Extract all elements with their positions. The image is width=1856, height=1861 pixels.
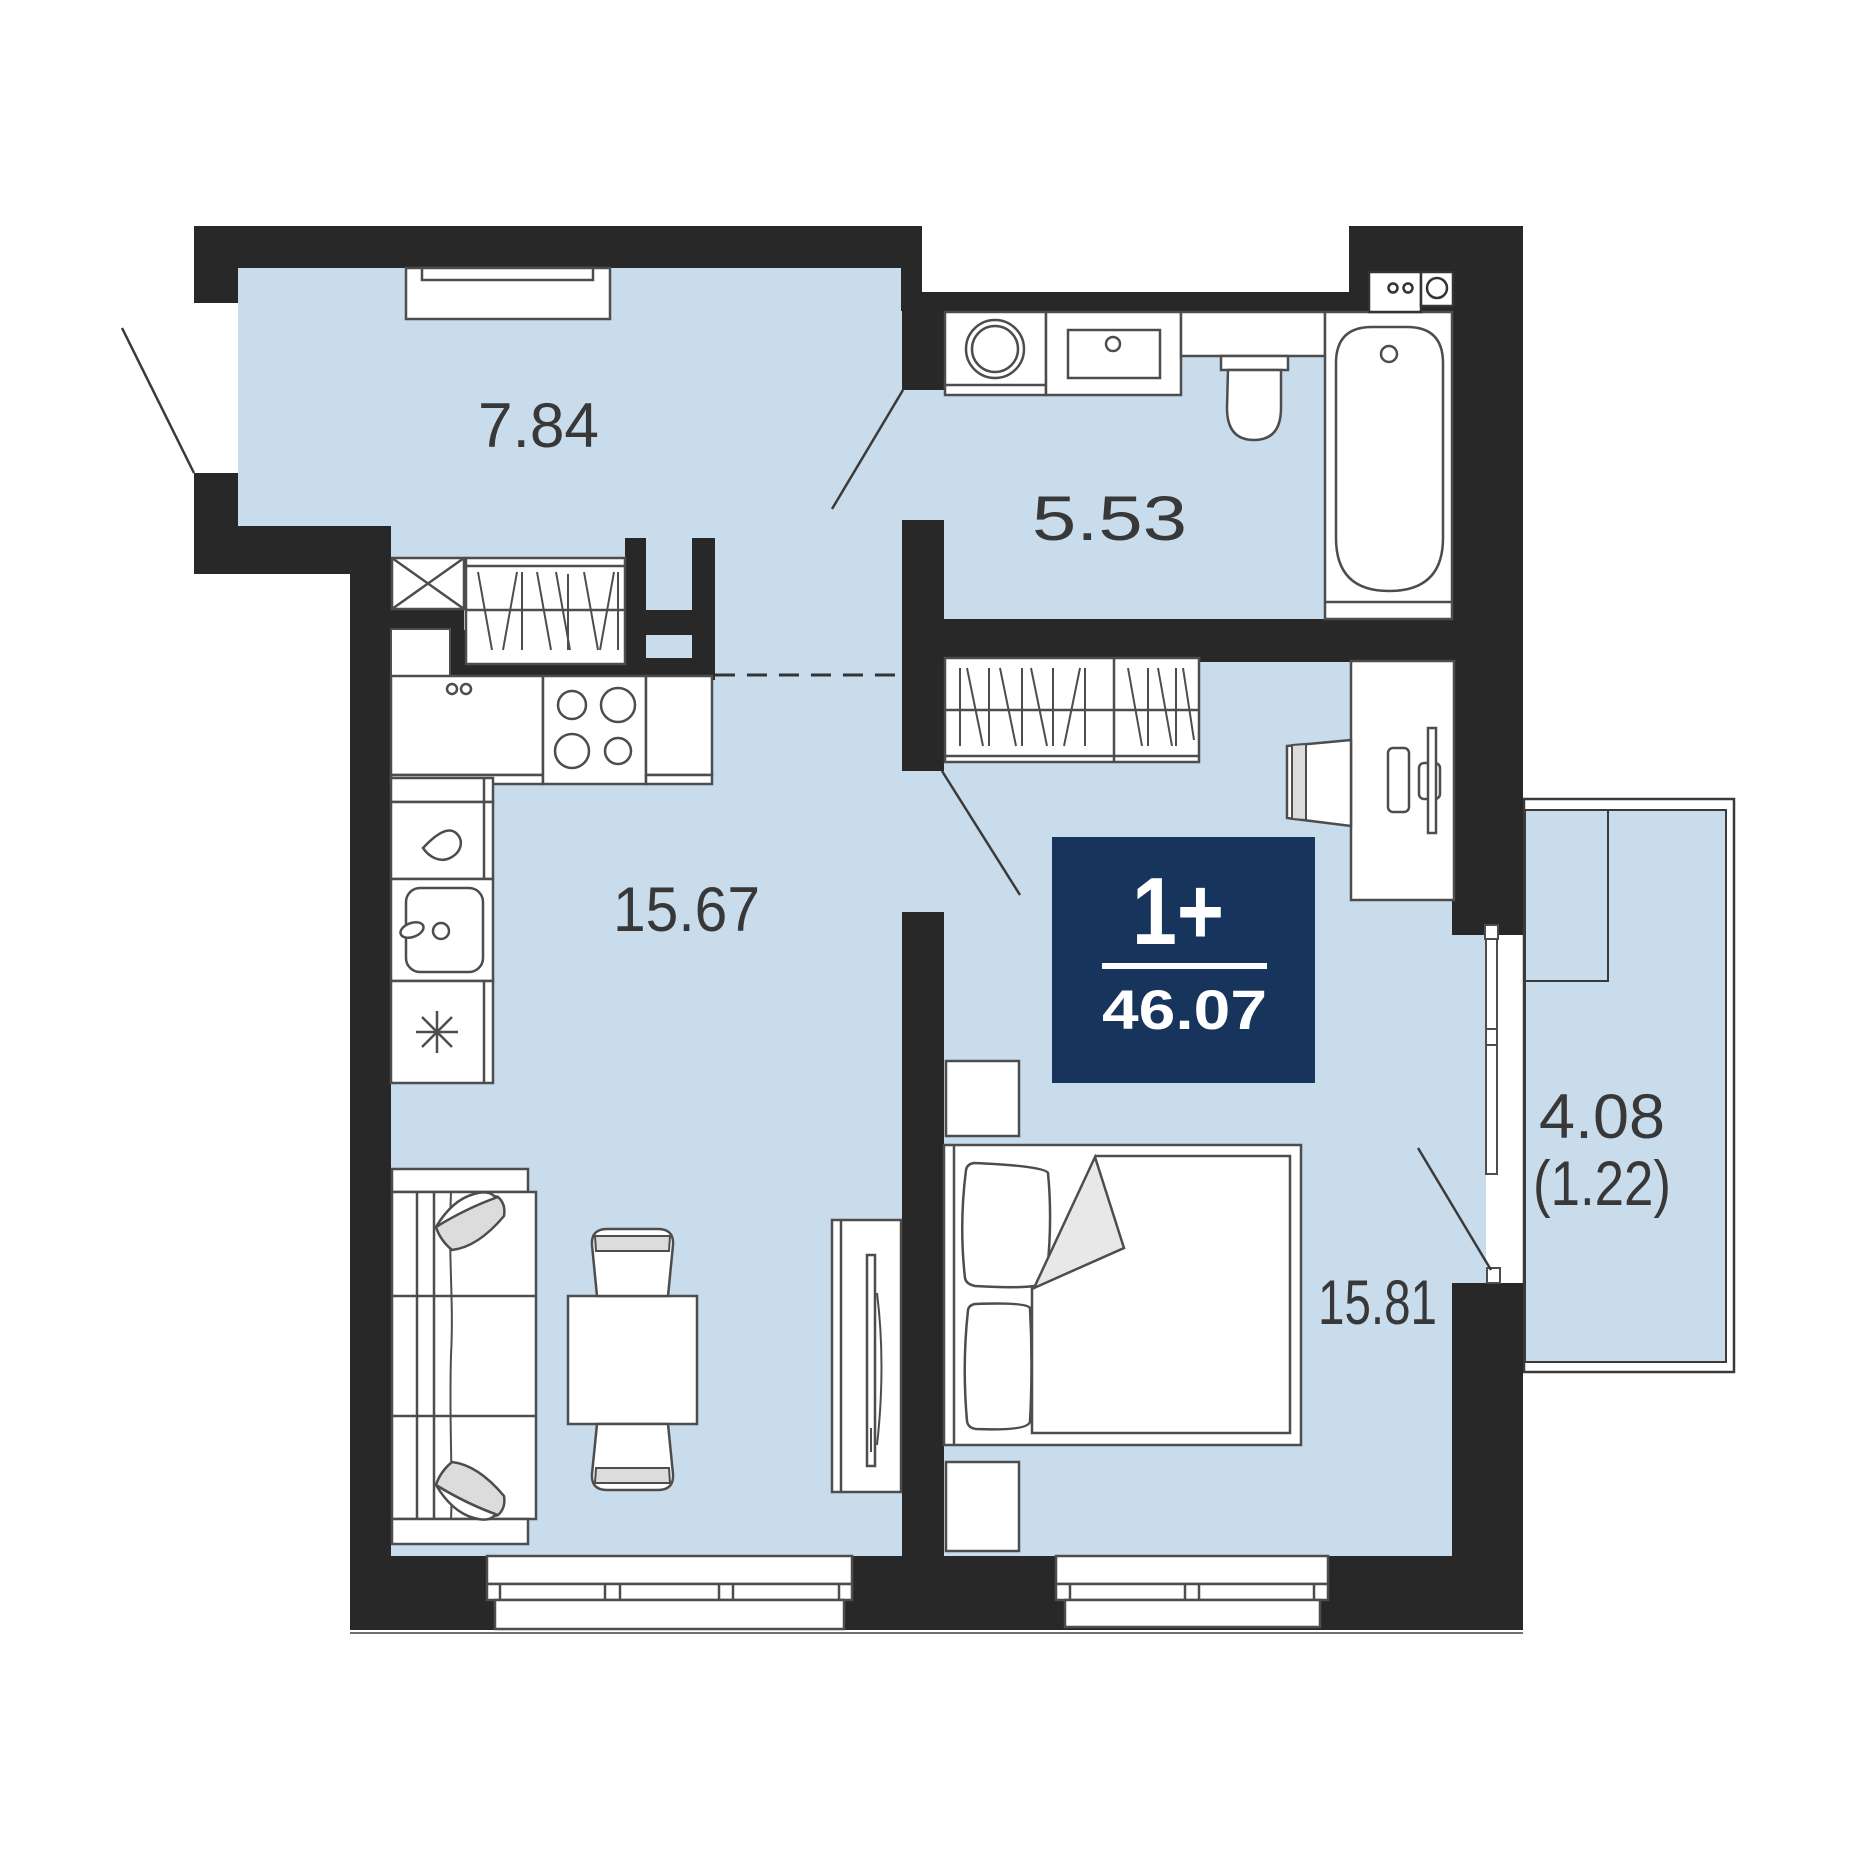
svg-text:(1.22): (1.22) bbox=[1533, 1149, 1671, 1219]
svg-text:1+: 1+ bbox=[1132, 858, 1224, 965]
svg-text:15.67: 15.67 bbox=[613, 875, 760, 945]
svg-text:7.84: 7.84 bbox=[478, 391, 599, 461]
svg-text:4.08: 4.08 bbox=[1539, 1082, 1665, 1152]
svg-text:46.07: 46.07 bbox=[1102, 978, 1267, 1041]
svg-text:5.53: 5.53 bbox=[1032, 484, 1187, 554]
svg-text:15.81: 15.81 bbox=[1318, 1268, 1437, 1338]
